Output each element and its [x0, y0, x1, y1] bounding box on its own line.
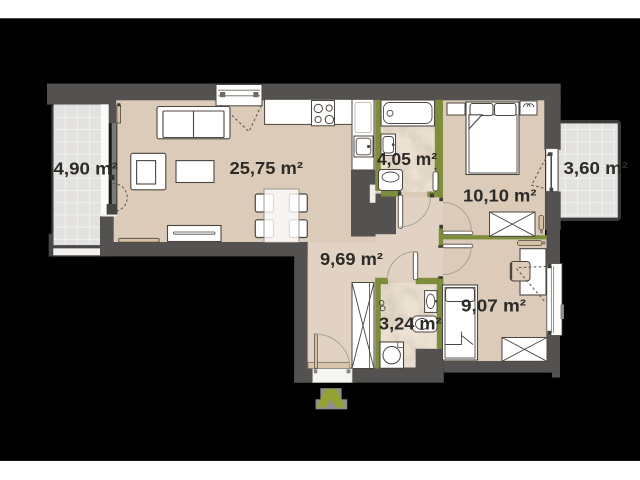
svg-text:4,05 m²: 4,05 m² — [377, 149, 437, 169]
svg-text:9,07 m²: 9,07 m² — [461, 296, 526, 316]
svg-text:9,69 m²: 9,69 m² — [320, 249, 383, 269]
svg-text:25,75 m²: 25,75 m² — [230, 158, 304, 178]
svg-text:3,24 m²: 3,24 m² — [379, 313, 442, 333]
svg-text:3,60 m²: 3,60 m² — [564, 158, 629, 178]
svg-text:10,10 m²: 10,10 m² — [463, 185, 537, 205]
svg-text:4,90 m²: 4,90 m² — [54, 158, 119, 178]
